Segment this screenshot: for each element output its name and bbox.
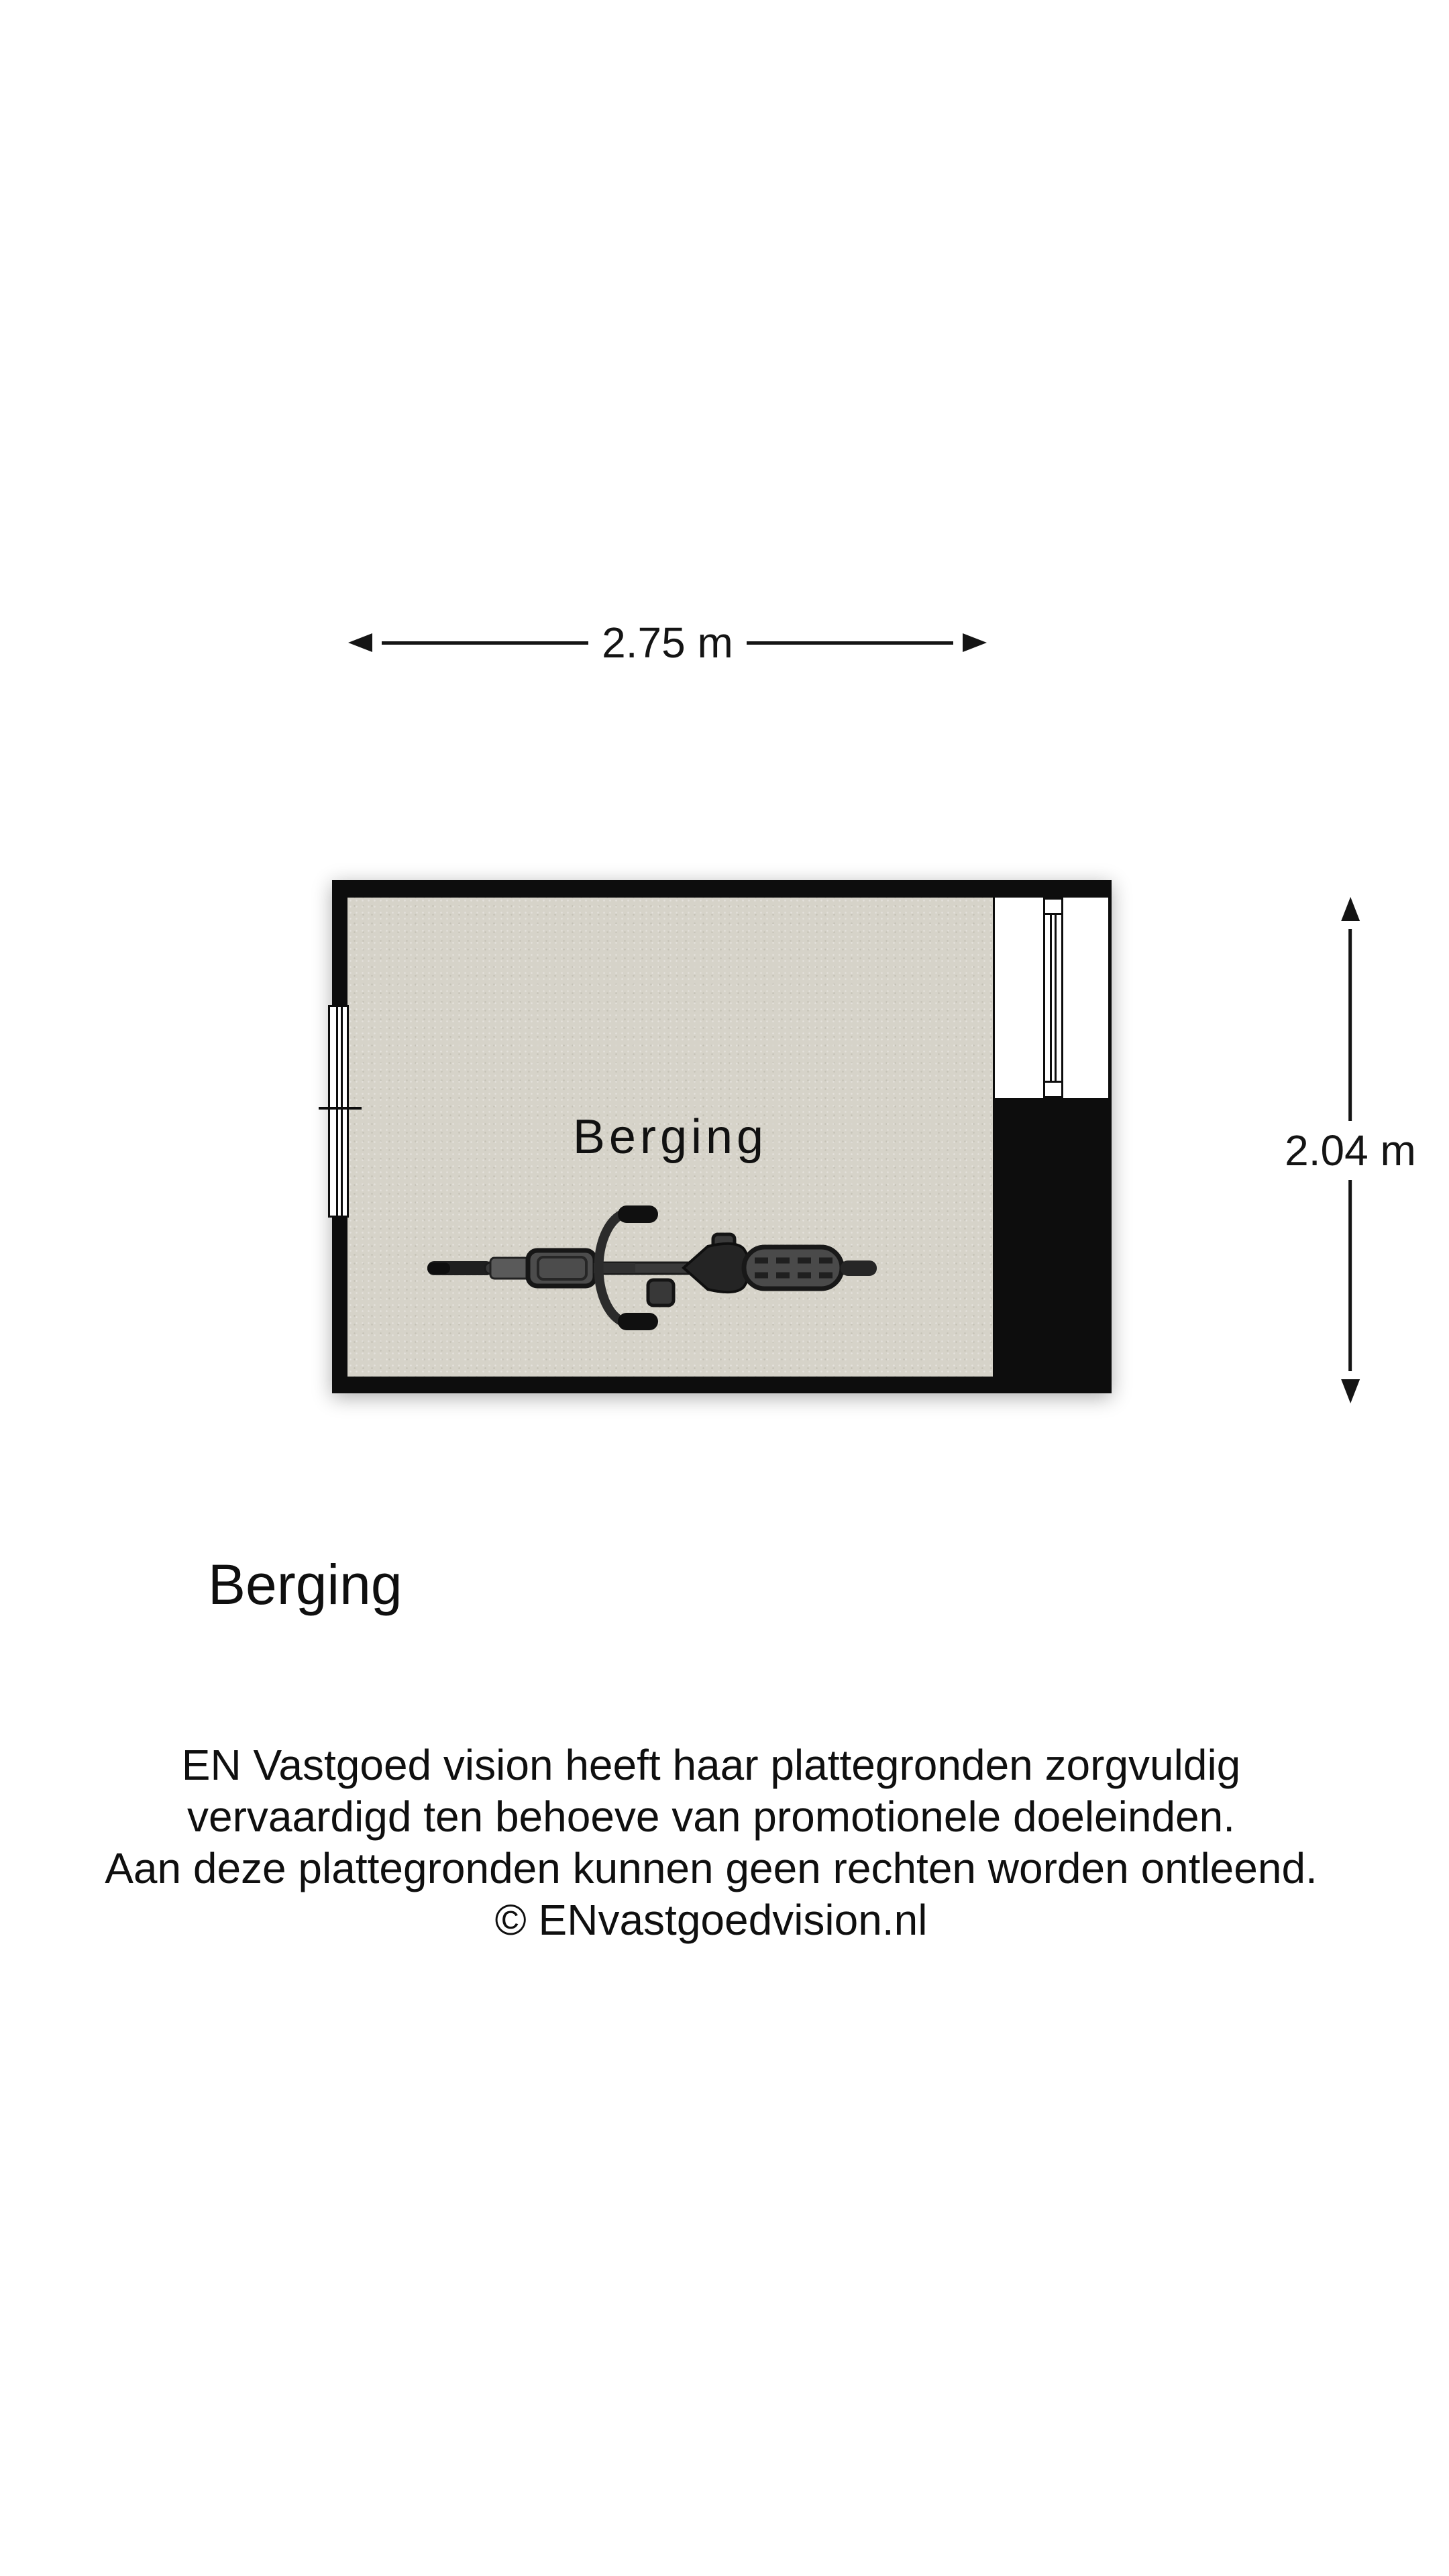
dimension-width-label: 2.75 m xyxy=(598,621,737,664)
arrowhead-up-icon xyxy=(1341,897,1360,921)
window-center-tick xyxy=(319,1107,362,1110)
disclaimer-line: vervaardigd ten behoeve van promotionele… xyxy=(0,1791,1422,1843)
bicycle-icon xyxy=(426,1194,882,1342)
plan-title: Berging xyxy=(208,1554,402,1615)
dimension-width: 2.75 m xyxy=(348,621,987,664)
dimension-line xyxy=(747,641,953,645)
arrowhead-right-icon xyxy=(963,633,987,652)
floor-plan: Berging xyxy=(332,880,1112,1393)
dimension-line xyxy=(1349,929,1352,1121)
disclaimer-line: Aan deze plattegronden kunnen geen recht… xyxy=(0,1843,1422,1894)
dimension-height-label: 2.04 m xyxy=(1281,1129,1420,1172)
room-label: Berging xyxy=(347,1113,993,1161)
dimension-line xyxy=(382,641,588,645)
arrowhead-left-icon xyxy=(348,633,372,652)
floorplan-page: { "dimensions": { "width": { "label": "2… xyxy=(0,0,1449,2576)
window-icon xyxy=(1043,898,1063,1098)
right-wall-opening xyxy=(993,898,1112,1098)
arrowhead-down-icon xyxy=(1341,1379,1360,1403)
right-wall-section xyxy=(993,1098,1112,1393)
dimension-height: 2.04 m xyxy=(1281,897,1420,1403)
disclaimer-line: © ENvastgoedvision.nl xyxy=(0,1894,1422,1946)
dimension-line xyxy=(1349,1180,1352,1372)
disclaimer-text: EN Vastgoed vision heeft haar plattegron… xyxy=(0,1739,1422,1946)
window-icon xyxy=(328,1005,349,1218)
disclaimer-line: EN Vastgoed vision heeft haar plattegron… xyxy=(0,1739,1422,1791)
